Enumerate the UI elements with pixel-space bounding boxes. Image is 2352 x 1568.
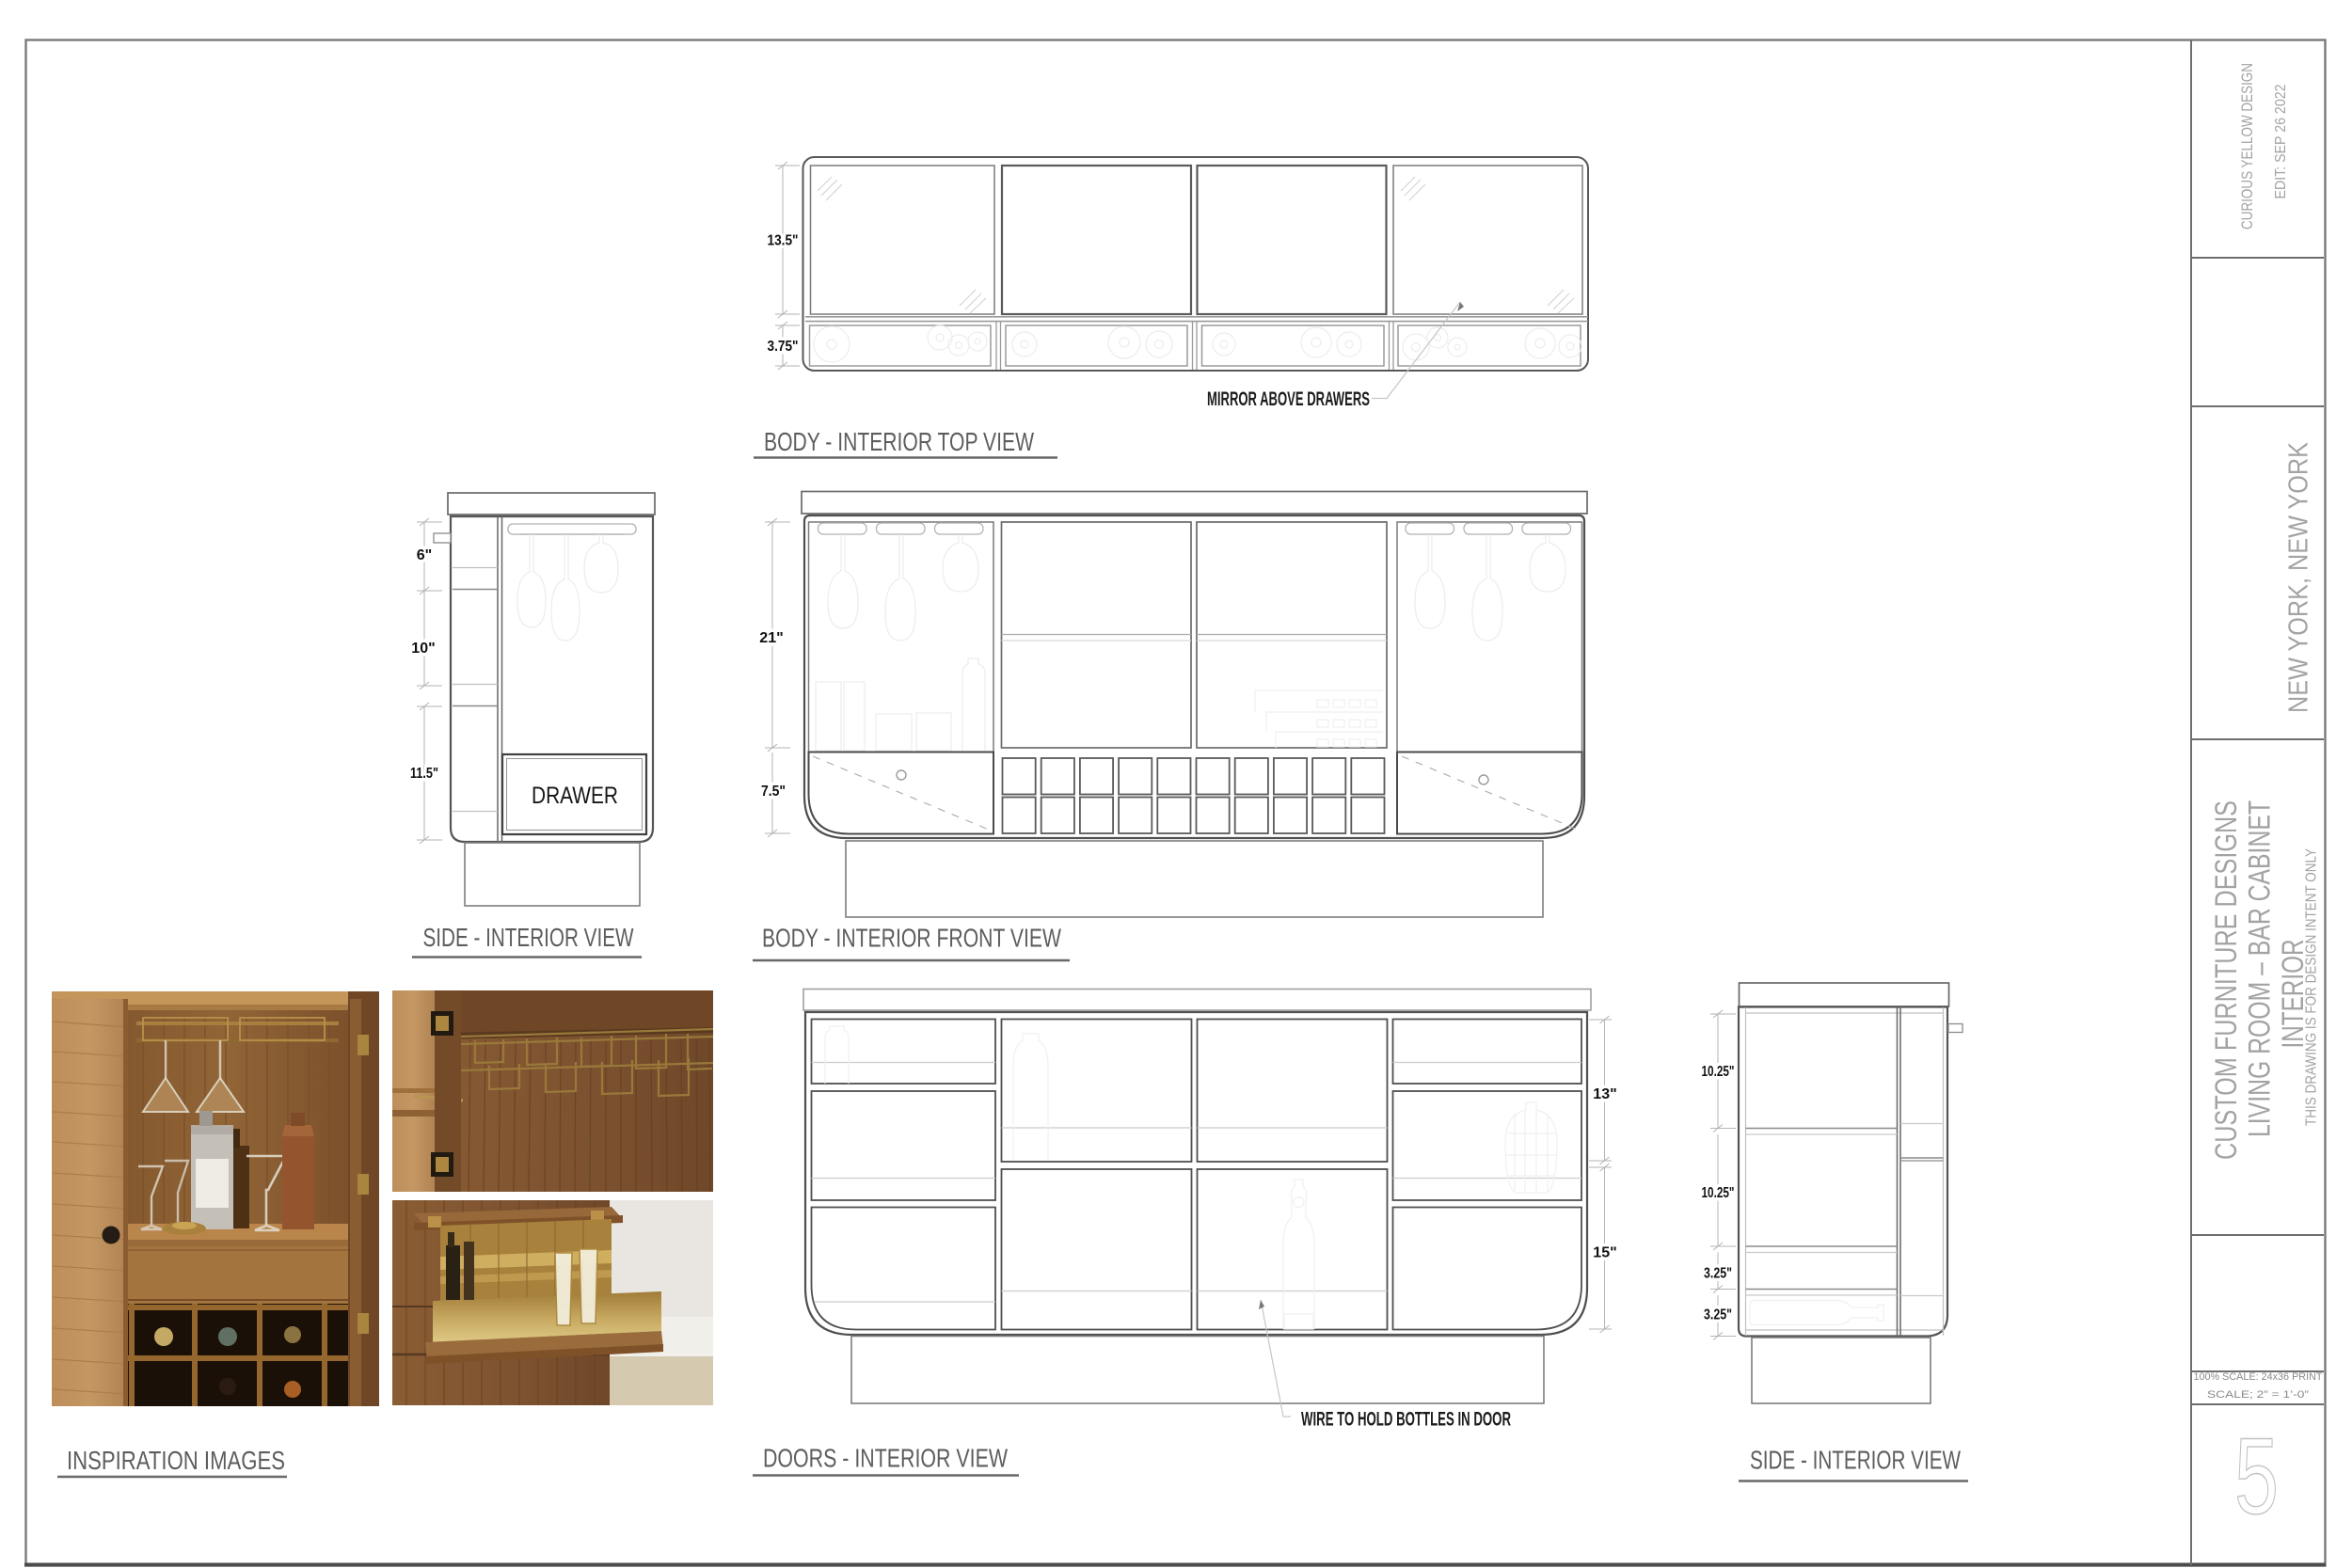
svg-text:15": 15" (1593, 1245, 1616, 1261)
svg-text:13": 13" (1593, 1086, 1616, 1102)
svg-text:NEW YORK, NEW YORK: NEW YORK, NEW YORK (2284, 441, 2314, 713)
svg-text:3.75": 3.75" (768, 339, 799, 355)
svg-text:BODY - INTERIOR TOP VIEW: BODY - INTERIOR TOP VIEW (764, 427, 1034, 456)
svg-text:11.5": 11.5" (410, 766, 438, 782)
svg-text:EDIT: SEP 26 2022: EDIT: SEP 26 2022 (2273, 85, 2289, 199)
svg-text:13.5": 13.5" (768, 233, 799, 249)
svg-text:10.25": 10.25" (1702, 1185, 1735, 1201)
svg-text:SIDE - INTERIOR VIEW: SIDE - INTERIOR VIEW (1750, 1446, 1961, 1475)
svg-text:SCALE; 2” = 1’-0”: SCALE; 2” = 1’-0” (2207, 1389, 2309, 1401)
svg-text:7.5": 7.5" (761, 784, 786, 800)
svg-text:3.25": 3.25" (1704, 1307, 1732, 1323)
svg-text:LIVING ROOM – BAR CABINET: LIVING ROOM – BAR CABINET (2243, 800, 2277, 1137)
svg-text:INSPIRATION IMAGES: INSPIRATION IMAGES (67, 1446, 285, 1475)
svg-text:CUSTOM FURNITURE DESIGNS: CUSTOM FURNITURE DESIGNS (2209, 800, 2243, 1160)
svg-text:WIRE TO HOLD BOTTLES IN DOOR: WIRE TO HOLD BOTTLES IN DOOR (1301, 1408, 1511, 1431)
svg-text:100% SCALE: 24x36 PRINT: 100% SCALE: 24x36 PRINT (2194, 1371, 2323, 1383)
svg-text:SIDE - INTERIOR VIEW: SIDE - INTERIOR VIEW (423, 923, 634, 952)
svg-text:DRAWER: DRAWER (532, 783, 618, 809)
svg-text:CURIOUS YELLOW DESIGN: CURIOUS YELLOW DESIGN (2239, 63, 2256, 230)
svg-text:5: 5 (2234, 1417, 2279, 1537)
svg-text:3.25": 3.25" (1704, 1266, 1732, 1282)
svg-text:10.25": 10.25" (1702, 1064, 1735, 1080)
svg-text:21": 21" (759, 630, 783, 646)
svg-text:DOORS - INTERIOR VIEW: DOORS - INTERIOR VIEW (763, 1444, 1008, 1473)
svg-text:THIS DRAWING IS FOR DESIGN INT: THIS DRAWING IS FOR DESIGN INTENT ONLY (2304, 848, 2320, 1126)
svg-text:BODY - INTERIOR FRONT VIEW: BODY - INTERIOR FRONT VIEW (762, 924, 1061, 953)
svg-text:10": 10" (411, 641, 435, 657)
svg-text:6": 6" (417, 547, 432, 563)
svg-text:MIRROR ABOVE DRAWERS: MIRROR ABOVE DRAWERS (1207, 388, 1370, 410)
